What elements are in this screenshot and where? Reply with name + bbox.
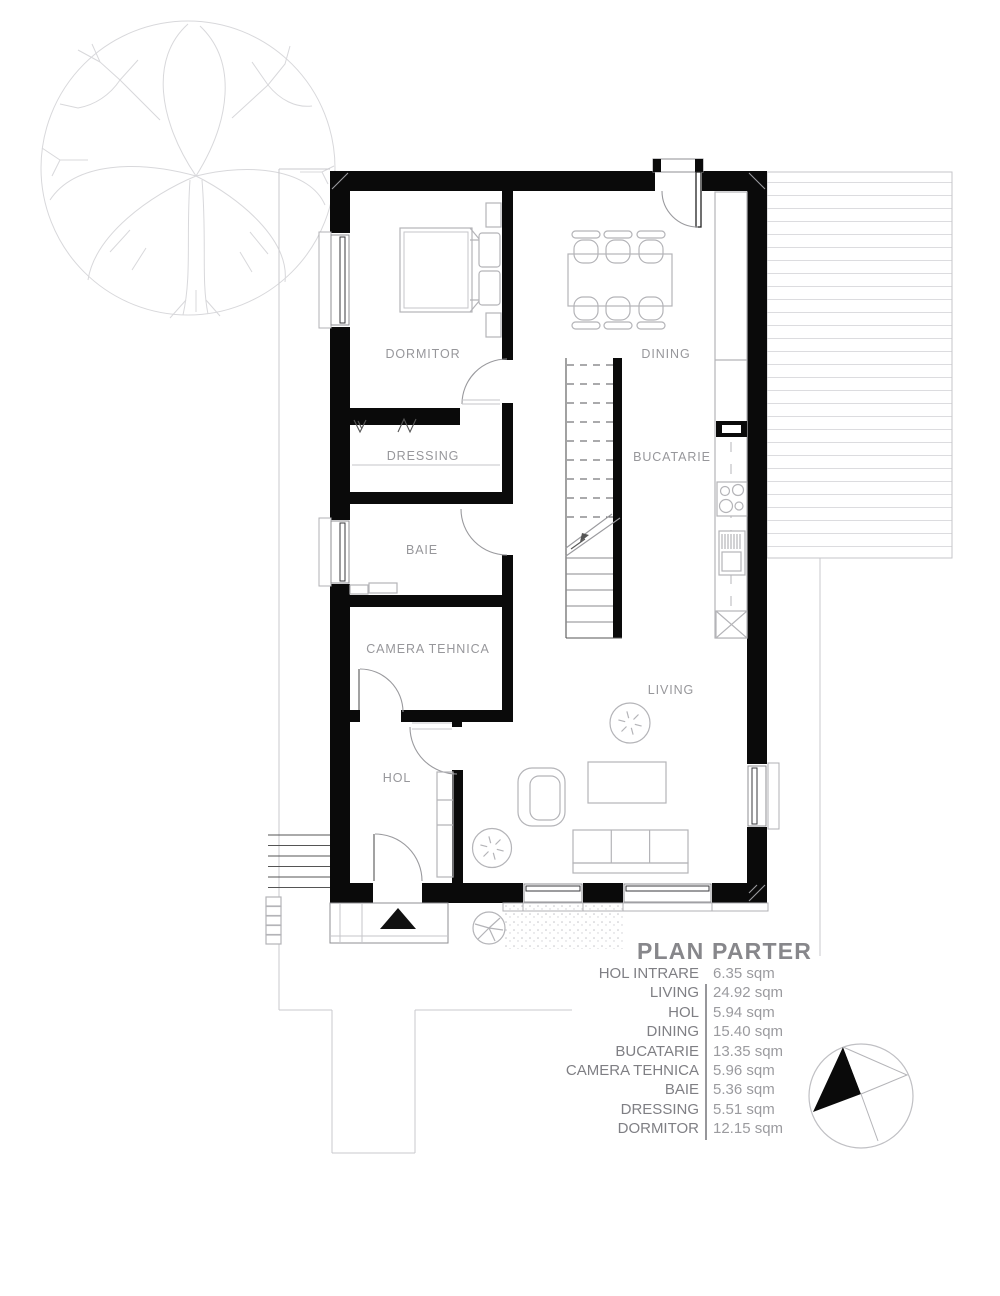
svg-text:HOL: HOL xyxy=(668,1004,699,1021)
door-baie xyxy=(461,509,507,555)
room-label-dormitor: DORMITOR xyxy=(385,347,460,361)
north-arrow-icon xyxy=(809,1044,913,1148)
bed xyxy=(400,228,500,312)
door-camera-tehnica xyxy=(359,669,403,712)
exterior-walls xyxy=(330,171,767,903)
pouf xyxy=(473,829,512,868)
terrace-deck xyxy=(767,172,952,558)
svg-text:5.94 sqm: 5.94 sqm xyxy=(713,1004,775,1021)
legend-row: HOL INTRARE 6.35 sqm xyxy=(599,965,775,982)
nightstand xyxy=(486,313,501,337)
door-hol-living xyxy=(410,723,457,774)
room-label-dining: DINING xyxy=(641,347,690,361)
svg-text:BAIE: BAIE xyxy=(665,1081,699,1098)
entrance-porch xyxy=(330,903,448,943)
bush-icon xyxy=(473,912,505,944)
room-label-baie: BAIE xyxy=(406,543,438,557)
opening-dressing xyxy=(462,400,500,404)
svg-text:HOL INTRARE: HOL INTRARE xyxy=(599,965,699,982)
hob-icon xyxy=(717,482,747,516)
entrance-steps xyxy=(266,835,330,944)
room-label-dressing: DRESSING xyxy=(387,449,460,463)
pouf xyxy=(610,703,650,743)
svg-text:24.92 sqm: 24.92 sqm xyxy=(713,984,783,1001)
armchair xyxy=(518,768,565,826)
sofa xyxy=(573,830,688,873)
room-label-hol: HOL xyxy=(383,771,411,785)
staircase xyxy=(566,358,622,638)
window-living-east xyxy=(748,763,779,829)
nightstand xyxy=(486,203,501,227)
svg-text:DORMITOR: DORMITOR xyxy=(618,1120,700,1137)
corner-hatches xyxy=(332,173,765,901)
door-dormitor xyxy=(462,359,507,404)
dining-table xyxy=(568,254,672,306)
walkway xyxy=(279,1010,572,1153)
legend-row: DORMITOR 12.15 sqm xyxy=(618,1120,783,1137)
window-living-south-2 xyxy=(624,884,711,902)
room-label-living: LIVING xyxy=(648,683,694,697)
coffee-table xyxy=(588,762,666,803)
sink-icon xyxy=(719,531,745,575)
svg-text:LIVING: LIVING xyxy=(650,984,699,1001)
svg-text:BUCATARIE: BUCATARIE xyxy=(615,1043,699,1060)
svg-text:12.15 sqm: 12.15 sqm xyxy=(713,1120,783,1137)
floor-plan-sheet: DORMITOR DRESSING BAIE CAMERA TEHNICA HO… xyxy=(0,0,1000,1296)
svg-text:15.40 sqm: 15.40 sqm xyxy=(713,1023,783,1040)
hall-wardrobe xyxy=(437,772,453,877)
baie-fixtures xyxy=(350,583,397,594)
svg-text:5.36 sqm: 5.36 sqm xyxy=(713,1081,775,1098)
legend-row: LIVING 24.92 sqm xyxy=(650,984,783,1001)
dishwasher-icon xyxy=(716,611,747,638)
svg-text:5.51 sqm: 5.51 sqm xyxy=(713,1101,775,1118)
svg-text:CAMERA TEHNICA: CAMERA TEHNICA xyxy=(566,1062,699,1079)
svg-text:DRESSING: DRESSING xyxy=(621,1101,699,1118)
window-dormitor xyxy=(319,232,349,328)
room-label-camera-tehnica: CAMERA TEHNICA xyxy=(366,642,490,656)
svg-text:DINING: DINING xyxy=(647,1023,700,1040)
svg-text:6.35 sqm: 6.35 sqm xyxy=(713,965,775,982)
legend-row: CAMERA TEHNICA 5.96 sqm xyxy=(566,1062,775,1079)
door-entrance-north xyxy=(653,159,703,227)
legend-row: DINING 15.40 sqm xyxy=(647,1023,784,1040)
kitchen-counter xyxy=(715,192,747,638)
legend-row: BUCATARIE 13.35 sqm xyxy=(615,1043,783,1060)
svg-text:13.35 sqm: 13.35 sqm xyxy=(713,1043,783,1060)
window-baie xyxy=(319,518,349,586)
dining-chairs xyxy=(572,231,665,329)
plan-title: PLAN PARTER xyxy=(637,938,812,964)
room-label-bucatarie: BUCATARIE xyxy=(633,450,711,464)
svg-text:5.96 sqm: 5.96 sqm xyxy=(713,1062,775,1079)
wall-openings xyxy=(330,171,767,903)
legend-row: DRESSING 5.51 sqm xyxy=(621,1101,775,1118)
legend: HOL INTRARE 6.35 sqm LIVING 24.92 sqm HO… xyxy=(566,965,783,1140)
door-entrance-south xyxy=(374,834,422,881)
legend-row: BAIE 5.36 sqm xyxy=(665,1081,775,1098)
window-living-south-1 xyxy=(524,884,582,902)
paved-path xyxy=(473,905,623,949)
legend-row: HOL 5.94 sqm xyxy=(668,1004,775,1021)
